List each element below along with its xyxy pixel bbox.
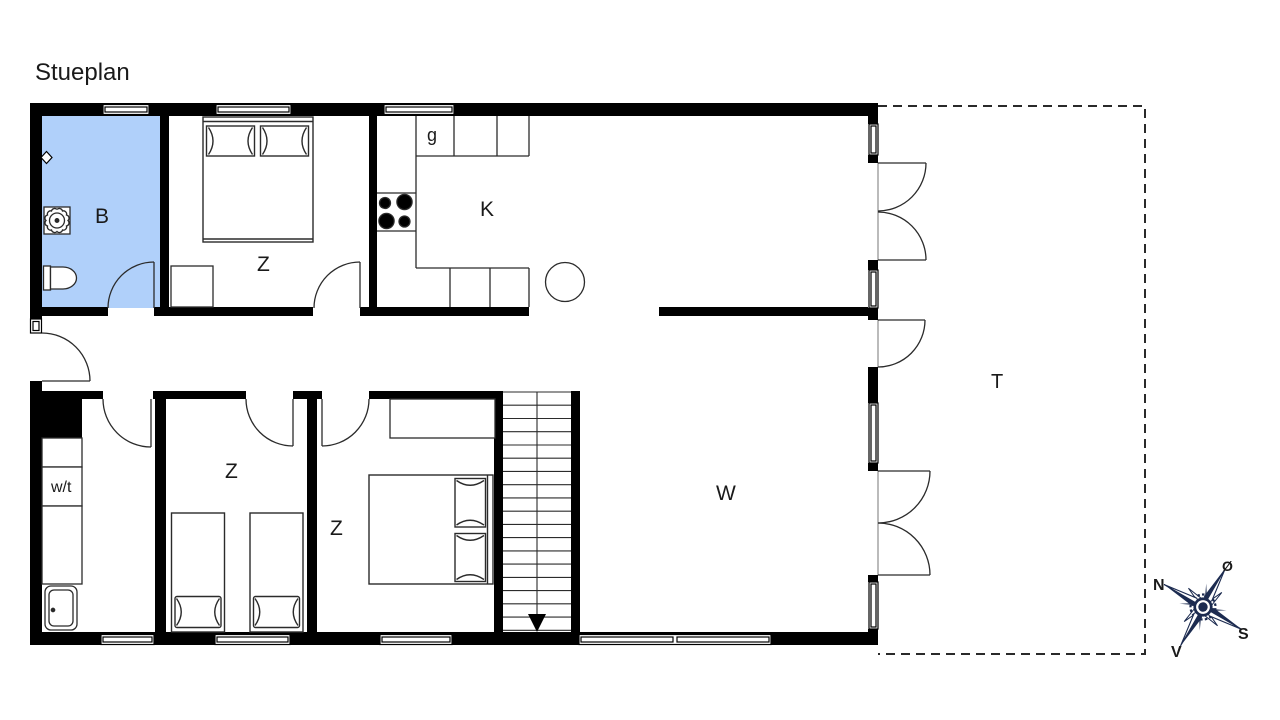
svg-text:B: B bbox=[95, 205, 109, 228]
svg-text:V: V bbox=[1171, 644, 1182, 661]
svg-text:S: S bbox=[1238, 626, 1249, 643]
svg-text:K: K bbox=[480, 198, 494, 221]
svg-text:Ø: Ø bbox=[1222, 558, 1233, 574]
svg-text:g: g bbox=[427, 125, 437, 145]
svg-text:Z: Z bbox=[330, 517, 343, 540]
svg-text:Z: Z bbox=[225, 460, 238, 483]
svg-text:Z: Z bbox=[257, 253, 270, 276]
svg-text:W: W bbox=[716, 482, 736, 505]
svg-text:T: T bbox=[991, 371, 1003, 393]
svg-text:Stueplan: Stueplan bbox=[35, 59, 130, 86]
svg-text:w/t: w/t bbox=[50, 479, 72, 496]
svg-text:N: N bbox=[1153, 577, 1165, 594]
